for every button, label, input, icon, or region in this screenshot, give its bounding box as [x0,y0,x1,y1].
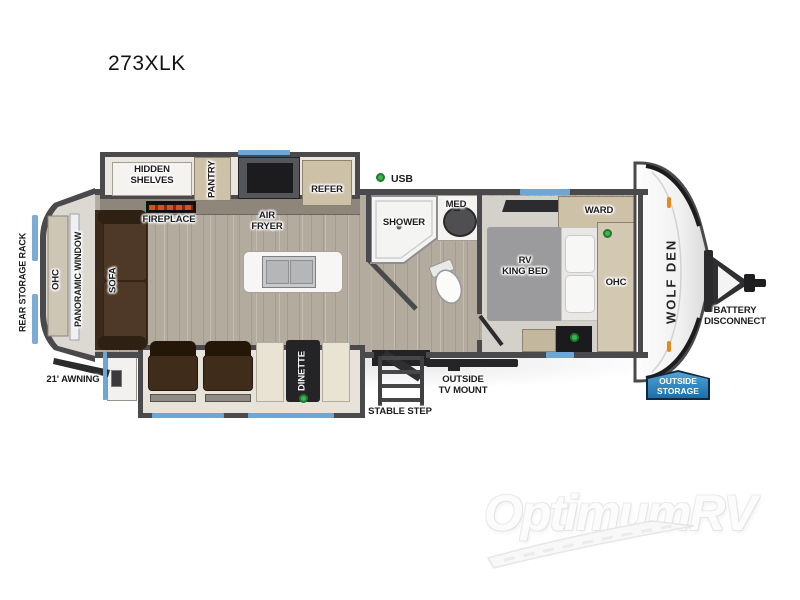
stable-step-label: STABLE STEP [362,407,438,418]
sofa-armrest-bottom [98,336,146,350]
chair-footrest [205,394,251,402]
range-stove [238,157,300,199]
door-handle [111,370,122,387]
theater-chair-left [148,341,198,399]
theater-chair-right [203,341,253,399]
pantry-label: PANTRY [204,158,222,200]
window-dinette-slide-left [152,413,224,418]
marker-light-bottom [667,341,671,352]
bath-sink [443,206,477,237]
dinette-bench-left [256,342,284,402]
sink-basin-left [266,260,289,284]
wall-front [638,189,643,358]
outside-storage-label: OUTSIDE STORAGE [657,374,699,396]
med-label: MED [441,200,471,211]
usb-indicator-dot [376,173,385,182]
outside-tv-mount-bar [426,359,518,367]
outside-tv-mount-label: OUTSIDE TV MOUNT [428,375,498,396]
sofa-label: SOFA [106,250,122,310]
hitch-a-frame-cutout [718,266,740,299]
air-fryer-label: AIR FRYER [244,211,290,232]
usb-label: USB [391,174,423,186]
refer-label: REFER [302,185,352,196]
fireplace-label: FIREPLACE [140,215,198,226]
bedroom-indicator-dot-bottom [570,333,579,342]
marker-light-top [667,197,671,208]
hidden-shelves-label: HIDDEN SHELVES [112,165,192,186]
wall-bath-left [366,192,371,262]
page-title: 273XLK [108,52,186,76]
front-cap-trim-top [646,166,699,226]
rear-ohc-label: OHC [49,252,65,308]
pillow-bottom [565,275,595,313]
outside-storage-badge-face: OUTSIDE STORAGE [648,372,708,398]
wolf-den-logo: WOLF DEN [661,226,683,336]
fireplace-unit [146,201,196,213]
awning-label: 21' AWNING [42,375,104,386]
chair-seat [203,355,253,391]
wall-bath-right-stub [477,340,482,356]
wall-bottom-mid [361,352,374,358]
shower-label: SHOWER [374,218,434,229]
dinette-bench-right [322,342,350,402]
hitch-jack-post [704,250,713,312]
wall-bottom-front [426,352,648,358]
window-dinette-slide-right [248,413,334,418]
road-dashes [504,525,678,560]
rear-storage-rack-label: REAR STORAGE RACK [15,224,30,340]
dinette-indicator-dot [299,394,308,403]
window-bedroom-top [520,189,570,195]
chair-footrest [150,394,196,402]
hitch-ball-mount [753,279,766,287]
window-kitchen-slide [238,150,290,155]
rear-rack-bar-top [32,215,38,261]
pillow-top [565,235,595,273]
wall-top [356,189,648,195]
bedroom-tv [502,200,564,212]
stable-step-ladder [378,356,424,406]
window-bedroom-bottom [546,352,574,358]
rv-king-bed-label: RV KING BED [485,256,565,277]
wall-bath-right [477,192,482,314]
battery-disconnect-label: BATTERY DISCONNECT [692,306,778,327]
bed-headboard-area [561,227,599,321]
bed-footboard [522,329,556,352]
wall-top-left-stub [95,189,105,195]
bedroom-ohc-label: OHC [601,278,631,289]
dinette-label: DINETTE [295,346,311,396]
cooktop [247,163,293,193]
tv-mount-bracket [448,365,460,371]
floorplan-page: 273XLK OptimumRV [0,0,800,600]
hitch-a-frame [713,257,750,307]
hitch-coupler [744,274,755,292]
double-sink [262,256,316,288]
ward-label: WARD [576,206,622,217]
watermark-road-graphic [482,518,752,593]
sink-basin-right [290,260,313,284]
refrigerator [302,160,352,206]
rear-baggage-door [107,353,137,401]
sofa-armrest-top [98,210,146,224]
fireplace-flames [149,205,193,210]
bedroom-indicator-dot-top [603,229,612,238]
chair-seat [148,355,198,391]
panoramic-window-label: PANORAMIC WINDOW [70,226,86,332]
rear-rack-bar-bottom [32,294,38,344]
